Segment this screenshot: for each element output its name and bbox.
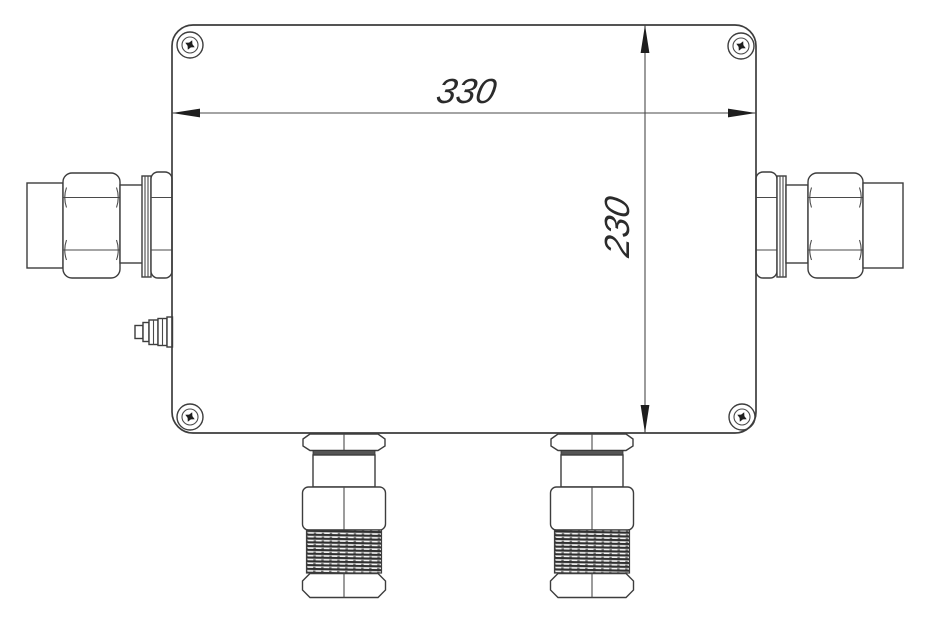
gland-left-hex-nut [63,173,120,278]
vent-tip [135,326,143,339]
enclosure-drawing: 330 230 [0,0,941,621]
technical-drawing-canvas: 330 230 [0,0,941,621]
dimension-label-height: 230 [598,193,637,261]
gland-left-end-cap [27,183,63,268]
vent-collar [143,323,149,342]
gland-right-neck [786,185,808,263]
gland-left-rings [142,176,151,277]
gland-b2-threads [555,530,630,573]
gland-left-wall-nut [151,172,172,278]
gland-left-neck [120,185,144,263]
gland-b2-neck [561,455,623,487]
gland-b1-threads [307,530,382,573]
dimension-label-width: 330 [433,72,500,111]
cable-gland-bottom-2 [551,434,634,598]
gland-right-rings [777,176,786,277]
cable-gland-bottom-1 [303,434,386,598]
gland-b1-neck [313,455,375,487]
vent-plug [135,317,173,347]
cable-gland-left [27,172,172,278]
gland-right-wall-nut [756,172,777,278]
gland-right-end-cap [863,183,903,268]
gland-right-hex-nut [808,173,863,278]
cable-gland-right [756,172,903,278]
